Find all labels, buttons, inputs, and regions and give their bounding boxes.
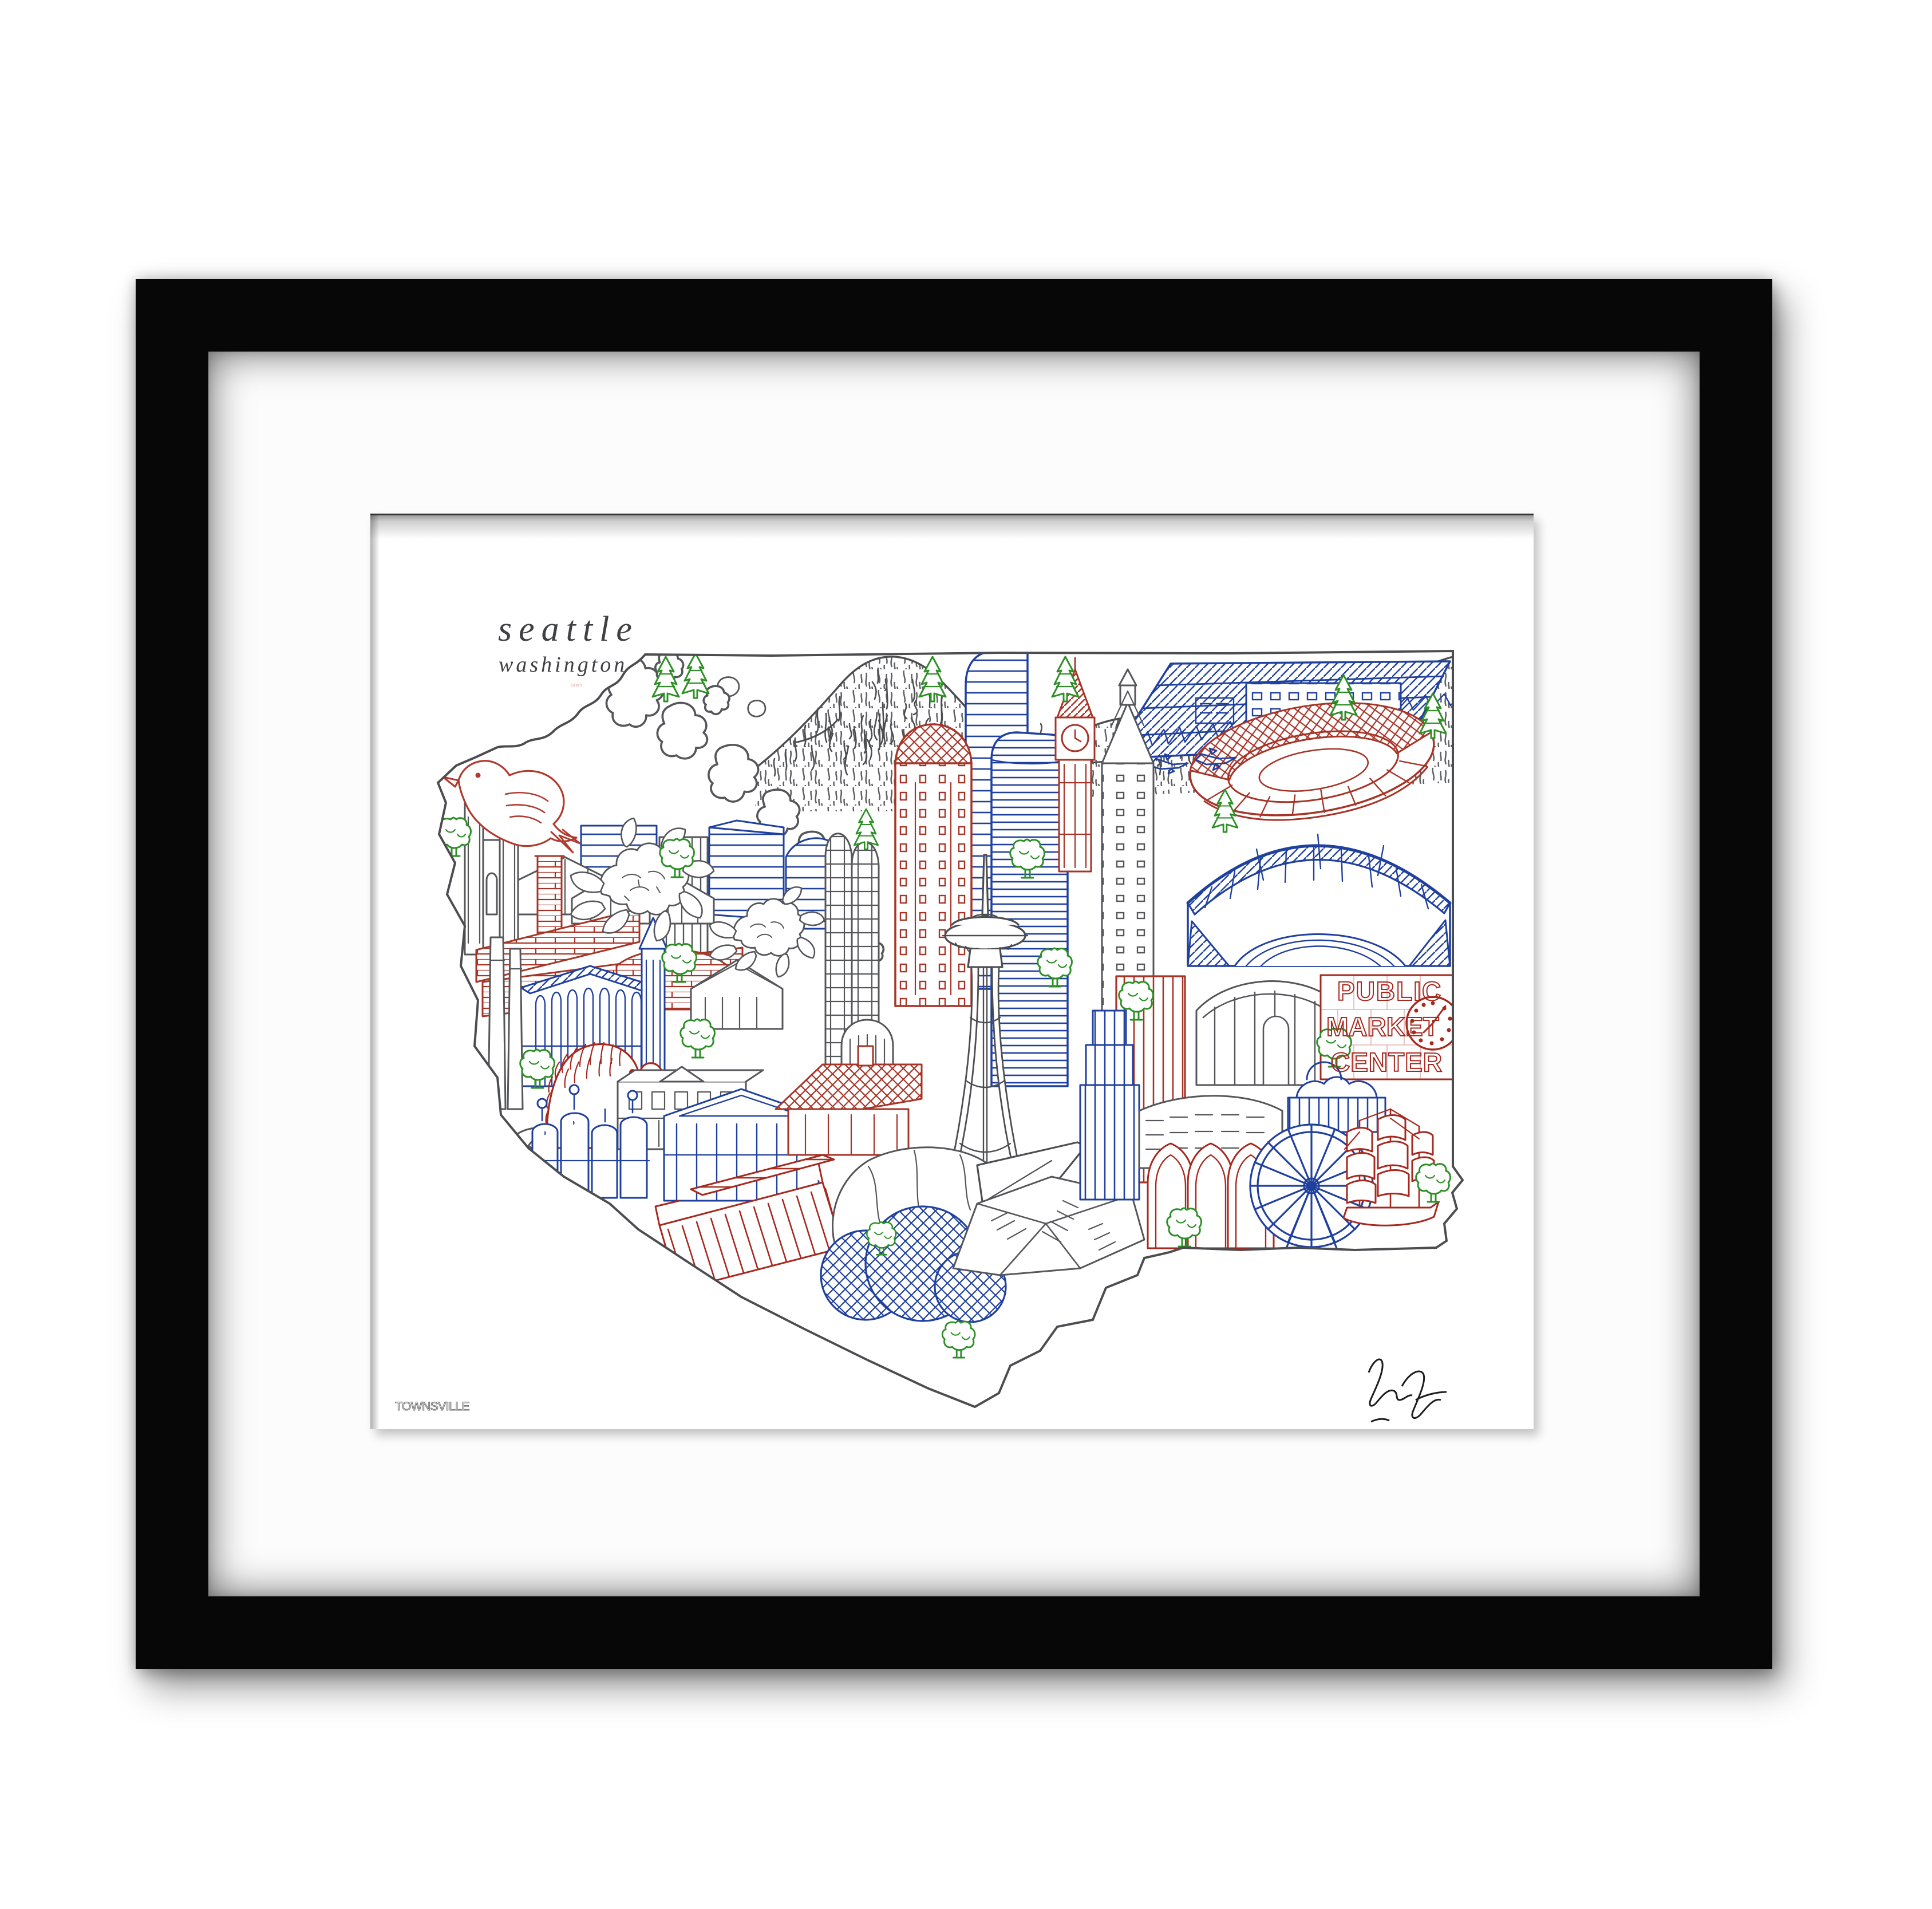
svg-text:seattle: seattle [498, 610, 639, 649]
svg-text:MARKET: MARKET [1326, 1012, 1439, 1042]
svg-text:CENTER: CENTER [1331, 1047, 1443, 1077]
svg-text:washington: washington [499, 653, 627, 677]
svg-text:town: town [571, 683, 583, 688]
svg-text:TOWNSVILLE: TOWNSVILLE [395, 1400, 469, 1413]
svg-text:PUBLIC: PUBLIC [1337, 976, 1442, 1006]
